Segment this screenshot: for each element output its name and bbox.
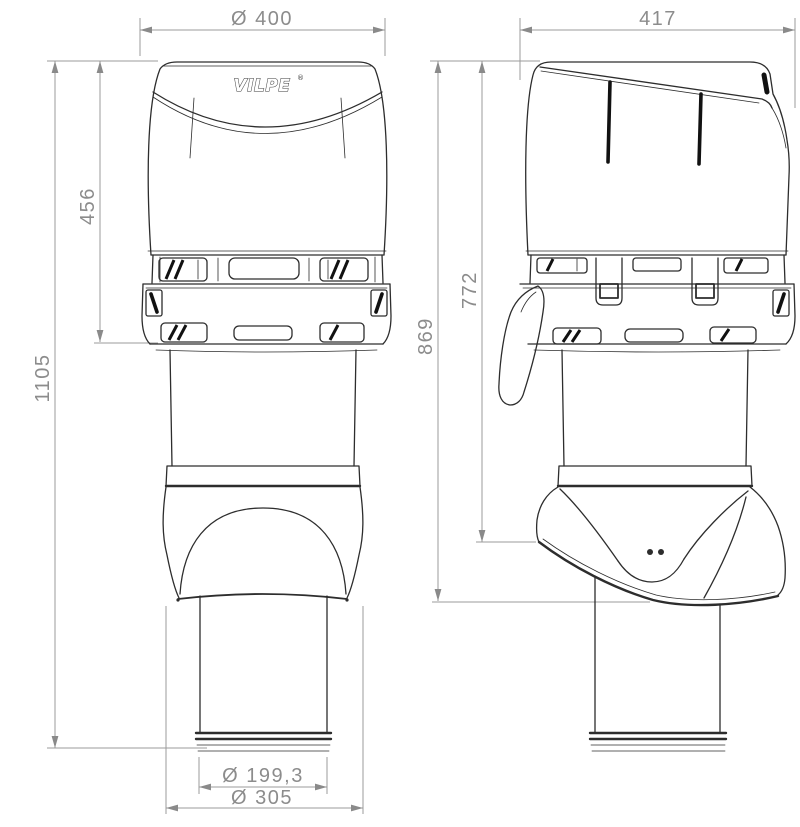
screw-hole <box>647 549 653 555</box>
arrow-down-icon <box>52 736 59 748</box>
side-vent-band <box>499 251 795 405</box>
arrow-left-icon <box>520 27 532 34</box>
dim-front-hood-diameter: Ø 400 <box>140 8 385 56</box>
drawing-svg: Ø 400 1105 456 Ø 199,3 Ø 305 417 <box>0 0 800 827</box>
side-view <box>499 62 795 751</box>
arrow-up-icon <box>52 61 59 73</box>
screw-hole <box>658 549 664 555</box>
arrow-left-icon <box>166 805 178 812</box>
front-upper-pipe <box>166 350 360 486</box>
arrow-right-icon <box>783 27 795 34</box>
side-hood <box>526 62 790 255</box>
front-vent-band <box>142 251 391 352</box>
vilpe-logo: VILPE ® <box>234 74 304 96</box>
arrow-up-icon <box>435 61 442 73</box>
hood-outline <box>526 62 790 255</box>
hood-groove <box>608 82 610 162</box>
front-hood: VILPE ® <box>148 62 387 255</box>
dim-front-total-height: 1105 <box>32 61 207 748</box>
side-upper-pipe <box>558 350 752 486</box>
technical-drawing-canvas: Ø 400 1105 456 Ø 199,3 Ø 305 417 <box>0 0 800 827</box>
dim-side-width: 417 <box>520 8 795 108</box>
dim-label-side-width: 417 <box>639 8 677 30</box>
front-lower-pipe <box>196 596 331 751</box>
arrow-right-icon <box>373 27 385 34</box>
front-view: VILPE ® <box>142 62 391 751</box>
arrow-down-icon <box>435 589 442 601</box>
dim-side-height-skirt-edge: 772 <box>459 61 536 542</box>
arrow-left-icon <box>199 784 211 791</box>
dim-label-hood-height: 456 <box>77 187 99 225</box>
arrow-right-icon <box>315 784 327 791</box>
registered-mark: ® <box>297 74 304 82</box>
arrow-up-icon <box>97 61 104 73</box>
dim-label-height-skirt-edge: 772 <box>459 271 481 309</box>
dim-label-height-overall: 869 <box>415 317 437 355</box>
arrow-left-icon <box>140 27 152 34</box>
rain-flap <box>499 286 544 405</box>
arrow-up-icon <box>479 61 486 73</box>
dim-label-hood-diameter: Ø 400 <box>231 8 293 30</box>
arrow-down-icon <box>97 330 104 342</box>
side-skirt <box>537 487 786 605</box>
hood-corner-vent-slot <box>764 75 767 92</box>
hood-groove <box>699 94 701 164</box>
arrow-right-icon <box>351 805 363 812</box>
dim-side-height-overall: 869 <box>415 61 650 602</box>
front-skirt <box>163 487 363 602</box>
dim-label-skirt-diameter: Ø 305 <box>231 787 293 809</box>
dim-label-total-height: 1105 <box>32 353 54 402</box>
dim-label-pipe-diameter: Ø 199,3 <box>222 765 304 787</box>
vilpe-logo-text: VILPE <box>234 76 291 96</box>
arrow-down-icon <box>479 530 486 542</box>
